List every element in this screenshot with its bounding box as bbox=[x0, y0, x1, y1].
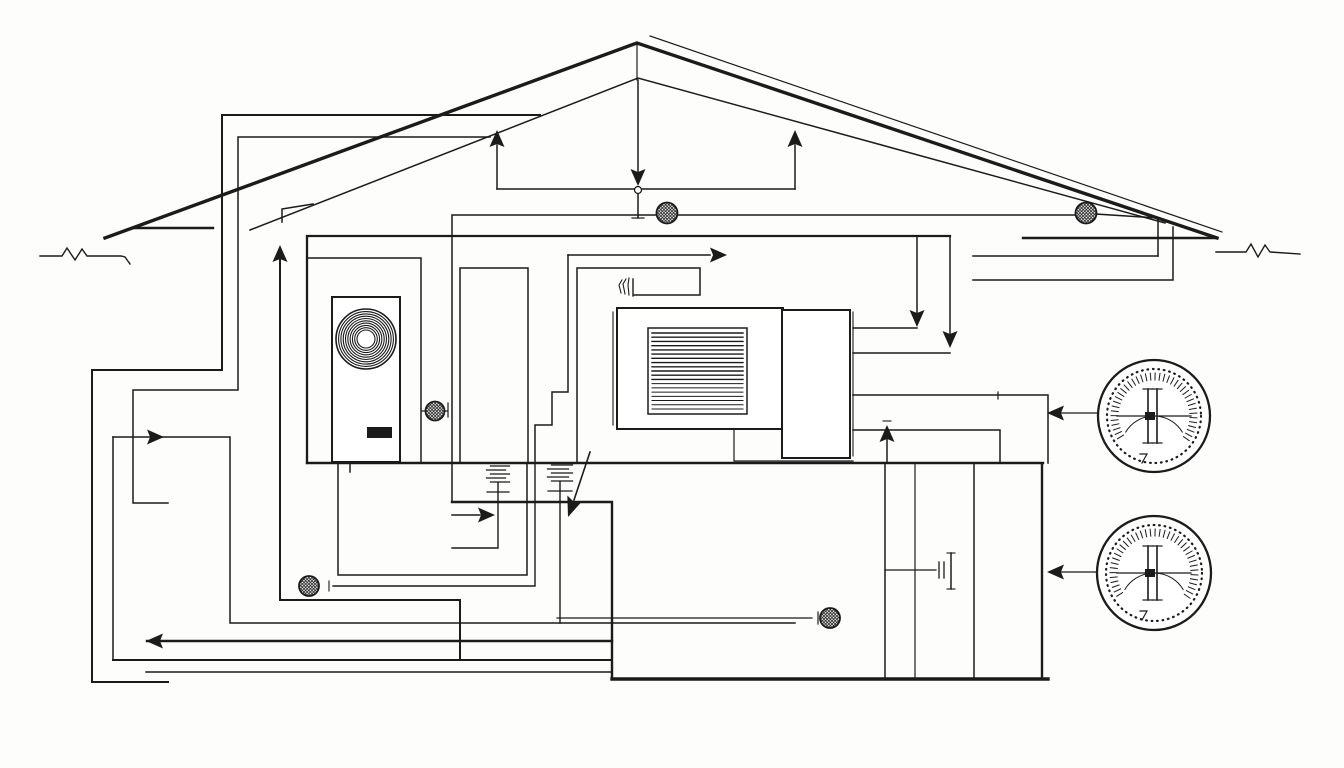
blower-label-badge bbox=[367, 427, 392, 438]
thermostat-dial-lower bbox=[1097, 516, 1211, 630]
dial-hub bbox=[1145, 412, 1155, 420]
basement-wall-left bbox=[452, 502, 612, 679]
closet-fan-icon bbox=[426, 402, 445, 421]
break-squiggle-right bbox=[1216, 244, 1300, 257]
chase-rect bbox=[460, 268, 528, 462]
supply-duct-395 bbox=[853, 395, 1048, 463]
airflow-right-supply bbox=[710, 248, 727, 263]
attic-duct-outer-loop bbox=[92, 115, 540, 682]
basement-fan-icon bbox=[299, 576, 319, 596]
junction-node bbox=[635, 187, 642, 194]
attic-fan-right-icon bbox=[1076, 203, 1097, 224]
flame-stroke-3 bbox=[628, 278, 629, 295]
attic-fan-line-right bbox=[1096, 214, 1158, 256]
flame-stroke-1 bbox=[619, 280, 622, 293]
supply-duct-430 bbox=[853, 430, 1000, 463]
hvac-schematic-page bbox=[0, 0, 1344, 768]
soffit-return-line-2 bbox=[973, 227, 1173, 280]
hvac-airflow-diagram bbox=[0, 0, 1344, 768]
break-squiggle-left bbox=[40, 248, 130, 264]
attic-duct-inner-loop bbox=[133, 137, 490, 503]
step-riser bbox=[535, 255, 568, 463]
supply-plenum bbox=[782, 310, 850, 458]
dial-hub bbox=[1145, 569, 1155, 577]
thermostat-dial-upper bbox=[1098, 360, 1210, 472]
damper-lever-arrow bbox=[560, 495, 582, 519]
basement-return-long bbox=[113, 437, 795, 623]
flame-stroke-2 bbox=[623, 279, 626, 294]
roof-inner bbox=[250, 78, 1165, 230]
roof-outer-double-right bbox=[650, 36, 1222, 232]
attic-fan-icon bbox=[657, 203, 678, 224]
room-fan-icon bbox=[820, 608, 840, 628]
